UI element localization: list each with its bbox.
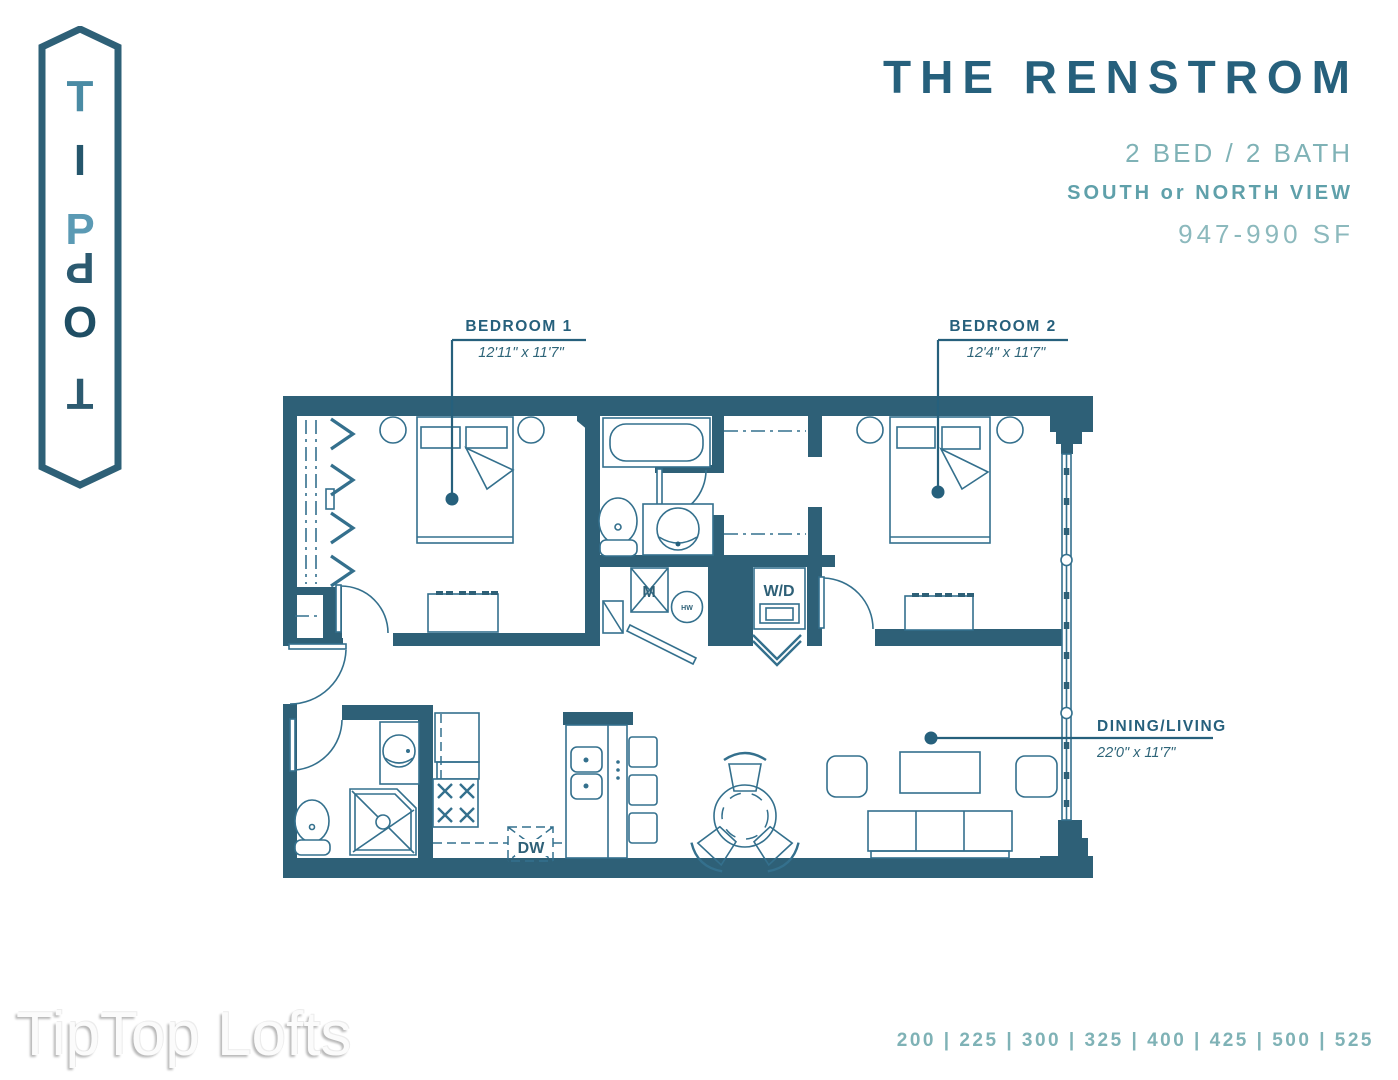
wall-corner-br [1058, 820, 1082, 838]
wall-band-br2 [875, 629, 1065, 646]
tiptop-logo: T I P P O T [36, 26, 124, 490]
logo-letter-i: I [74, 136, 86, 185]
watermark: TipTop Lofts [16, 999, 351, 1070]
kitchen-island [566, 725, 627, 858]
bifold-door-wd [753, 635, 801, 665]
unit-numbers: 200 | 225 | 300 | 325 | 400 | 425 | 500 … [897, 1030, 1374, 1052]
sofa [868, 811, 1012, 858]
door-entry [289, 644, 346, 704]
room-labels: BEDROOM 1 12'11" x 11'7" BEDROOM 2 12'4"… [446, 318, 1227, 761]
dresser-bedroom1 [428, 591, 498, 632]
mechanical-label: M [642, 584, 655, 601]
floor-plan: M HW W/D [250, 290, 1250, 910]
label-dining-living: DINING/LIVING 22'0" x 11'7" [925, 718, 1227, 761]
bar-stool [629, 775, 657, 805]
title-block: THE RENSTROM 2 BED / 2 BATH SOUTH or NOR… [883, 50, 1350, 250]
bifold-door-mech [627, 625, 696, 664]
wall-br1-bath [585, 416, 600, 646]
logo-letter-p2-inverted: P [65, 243, 94, 292]
leader-dot [925, 732, 938, 745]
dining-set [687, 753, 804, 876]
toilet-bathroom2 [295, 800, 330, 855]
bed-bath-line: 2 BED / 2 BATH [883, 138, 1353, 169]
leader-dot [446, 493, 459, 506]
room-dims: 12'4" x 11'7" [967, 345, 1046, 361]
hall-closets [724, 431, 806, 534]
bedroom2-furniture [857, 417, 1023, 630]
room-dims: 22'0" x 11'7" [1096, 745, 1176, 761]
wall-corner-tr [1050, 416, 1093, 432]
hot-water-label: HW [681, 605, 693, 612]
wall-bath2-east [418, 705, 433, 858]
plan-title: THE RENSTROM [883, 50, 1359, 104]
dishwasher-label: DW [518, 840, 546, 857]
room-name: DINING/LIVING [1097, 718, 1227, 735]
coffee-table [900, 752, 980, 793]
nightstand [380, 417, 406, 443]
room-name: BEDROOM 1 [465, 318, 572, 335]
room-dims: 12'11" x 11'7" [478, 345, 564, 361]
utility-closets: M HW W/D [603, 568, 805, 633]
corner-shower [350, 789, 416, 855]
window-wall [1061, 454, 1072, 820]
stove [433, 779, 478, 827]
door-bedroom1 [336, 585, 388, 633]
wall-notch [577, 416, 600, 431]
dining-table [714, 785, 776, 847]
door-bedroom2 [819, 577, 873, 629]
wall-top [283, 396, 1093, 416]
bar-stool [629, 737, 657, 767]
bed-bedroom2 [890, 417, 990, 543]
washer-dryer: W/D [754, 568, 805, 629]
end-table [827, 756, 867, 797]
vanity-bathroom2 [380, 722, 419, 784]
bar-stool [629, 813, 657, 843]
dresser-bedroom2 [905, 593, 974, 630]
bed-bedroom1 [417, 417, 513, 543]
wall-band-br1 [393, 633, 585, 646]
mechanical-unit: M [603, 568, 668, 633]
bathroom1-fixtures [599, 418, 713, 556]
nightstand [518, 417, 544, 443]
living-furniture [827, 752, 1057, 858]
view-line: SOUTH or NORTH VIEW [883, 182, 1353, 205]
door-bathroom2 [290, 719, 342, 771]
nightstand [997, 417, 1023, 443]
square-footage: 947-990 SF [883, 219, 1354, 250]
logo-letter-o-inverted: O [63, 297, 97, 346]
toilet-bathroom1 [599, 498, 637, 556]
wall-bottom [283, 858, 1043, 878]
bathroom2-fixtures [295, 722, 419, 855]
tiptop-logo-svg: T I P P O T [36, 26, 124, 490]
logo-letter-t1: T [67, 72, 94, 121]
kitchen: DW [433, 713, 657, 861]
washer-dryer-label: W/D [763, 583, 794, 600]
dishwasher: DW [508, 827, 553, 861]
room-name: BEDROOM 2 [949, 318, 1056, 335]
leader-dot [932, 486, 945, 499]
bathtub [603, 418, 710, 467]
hot-water-tank: HW [672, 592, 703, 623]
end-table [1016, 756, 1057, 797]
wall-mid-closets [708, 567, 753, 646]
floorplan-flyer: T I P P O T THE RENSTROM 2 BED / 2 BATH … [0, 0, 1398, 1080]
vanity-bathroom1 [643, 504, 713, 555]
nightstand [857, 417, 883, 443]
wall-island-stub [563, 712, 633, 725]
logo-letter-t2-inverted: T [66, 369, 93, 418]
wall-left-upper [283, 396, 297, 646]
closet-rod-bedroom1 [306, 419, 353, 586]
